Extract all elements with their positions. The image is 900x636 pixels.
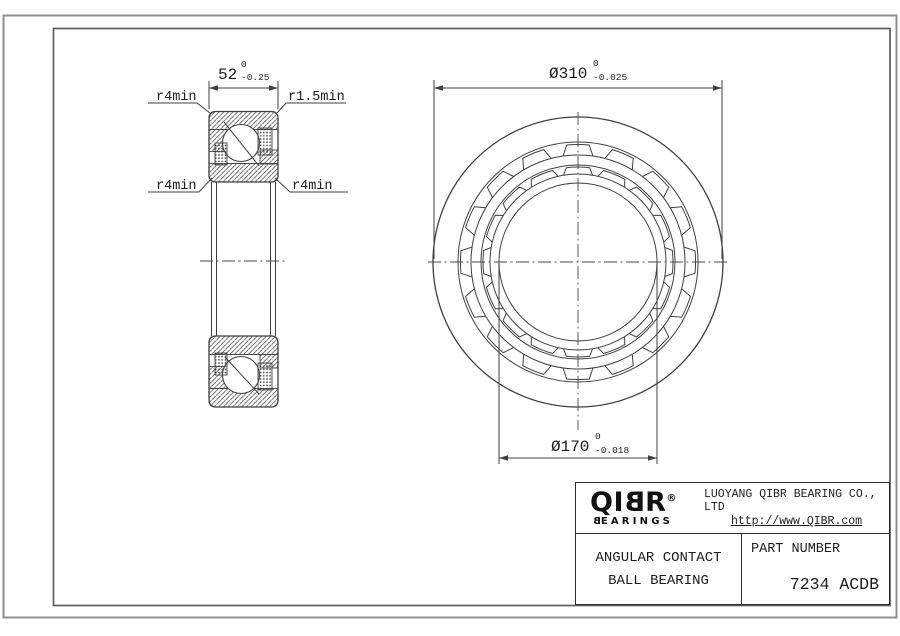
- lower-ring-section: [209, 336, 278, 407]
- bore-dim-value: Ø170: [551, 438, 589, 456]
- logo-wordmark: QIBR®: [590, 486, 704, 516]
- logo-text: QIBR: [590, 487, 666, 518]
- cage-rivet-top-right: [258, 128, 272, 155]
- title-block: QIBR® BEARINGS LUOYANG QIBR BEARING CO.,…: [575, 482, 890, 605]
- cage-pocket: [629, 313, 653, 337]
- arrowhead-right: [269, 85, 278, 91]
- width-dim-tol-upper: 0: [241, 59, 247, 70]
- upper-ring-section: [209, 112, 278, 183]
- section-view: 52 0 -0.25 r4min r1.5min r4min r4min: [148, 59, 348, 407]
- inner-ring-hatch-top: [209, 336, 278, 355]
- company-website: http://www.QIBR.com: [731, 515, 862, 528]
- logo-subtext: BEARINGS: [590, 516, 704, 527]
- bore-dim-tol-upper: 0: [595, 431, 601, 442]
- cage-rivet-top-left: [215, 143, 227, 165]
- bore-dim-tol-lower: -0.018: [595, 445, 630, 456]
- product-line1: ANGULAR CONTACT: [595, 550, 721, 566]
- product-line2: BALL BEARING: [608, 573, 709, 589]
- width-dimension: 52 0 -0.25: [209, 59, 278, 109]
- bore-tube-lines: [212, 182, 276, 336]
- front-view: Ø310 0 -0.025 Ø170 0 -0.018: [428, 58, 728, 464]
- od-dim-tol-lower: -0.025: [593, 72, 628, 83]
- arrowhead-left: [209, 85, 218, 91]
- product-description: ANGULAR CONTACT BALL BEARING: [576, 534, 741, 604]
- title-block-header-row: QIBR® BEARINGS LUOYANG QIBR BEARING CO.,…: [576, 483, 889, 534]
- part-number-value: 7234 ACDB: [790, 575, 879, 594]
- width-dim-tol-lower: -0.25: [241, 72, 270, 83]
- company-logo: QIBR® BEARINGS: [576, 483, 704, 533]
- registered-trademark-symbol: ®: [666, 493, 677, 504]
- arrowhead-bore-right: [648, 455, 657, 461]
- company-name: LUOYANG QIBR BEARING CO., LTD: [704, 488, 889, 514]
- arrowhead-bore-left: [499, 455, 508, 461]
- cage-pocket: [503, 313, 527, 337]
- arrowhead-od-left: [434, 85, 443, 91]
- od-dim-tol-upper: 0: [593, 58, 599, 69]
- width-dim-value: 52: [218, 66, 237, 84]
- part-number-label: PART NUMBER: [751, 542, 840, 557]
- part-number-cell: PART NUMBER 7234 ACDB: [741, 534, 889, 604]
- cage-rivet-bottom-right: [258, 363, 272, 390]
- cage-pocket: [629, 187, 653, 211]
- cage-pocket: [503, 187, 527, 211]
- width-extension-lines: [209, 81, 278, 109]
- title-block-bottom-row: ANGULAR CONTACT BALL BEARING PART NUMBER…: [576, 534, 889, 604]
- cage-rivet-bottom-left: [215, 353, 227, 375]
- od-dim-value: Ø310: [549, 65, 587, 83]
- arrowhead-od-right: [713, 85, 722, 91]
- company-info: LUOYANG QIBR BEARING CO., LTD http://www…: [704, 483, 889, 533]
- inner-ring-hatch-bottom: [209, 164, 278, 183]
